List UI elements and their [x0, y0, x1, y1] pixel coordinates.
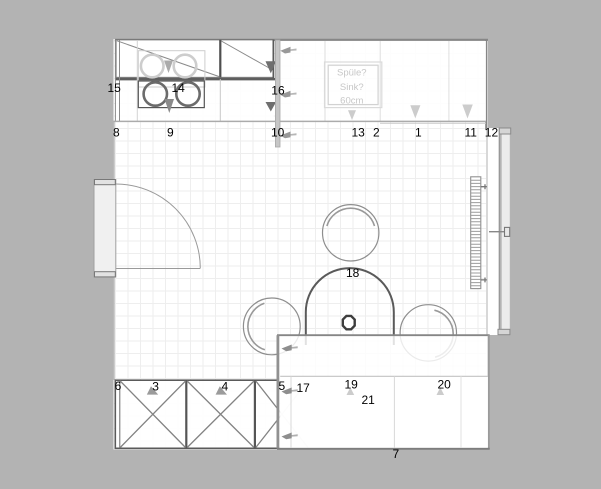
svg-text:19: 19: [345, 378, 359, 392]
svg-text:16: 16: [271, 84, 285, 98]
svg-text:Sink?: Sink?: [340, 82, 364, 93]
svg-text:12: 12: [485, 126, 499, 140]
svg-text:9: 9: [167, 126, 174, 140]
svg-text:7: 7: [393, 447, 400, 461]
svg-text:10: 10: [271, 126, 285, 140]
svg-text:15: 15: [108, 81, 122, 95]
svg-text:60cm: 60cm: [340, 95, 363, 106]
svg-text:17: 17: [297, 381, 311, 395]
svg-text:Spüle?: Spüle?: [337, 68, 367, 79]
svg-text:8: 8: [113, 126, 120, 140]
svg-text:14: 14: [172, 81, 186, 95]
svg-text:20: 20: [438, 378, 452, 392]
svg-text:4: 4: [222, 380, 229, 394]
svg-text:11: 11: [465, 126, 478, 140]
svg-text:21: 21: [362, 393, 376, 407]
svg-text:5: 5: [279, 379, 286, 393]
svg-text:6: 6: [115, 379, 122, 393]
svg-text:13: 13: [352, 126, 366, 140]
svg-text:1: 1: [415, 126, 422, 140]
svg-text:2: 2: [373, 126, 380, 140]
svg-text:18: 18: [346, 266, 360, 280]
svg-text:3: 3: [152, 380, 159, 394]
